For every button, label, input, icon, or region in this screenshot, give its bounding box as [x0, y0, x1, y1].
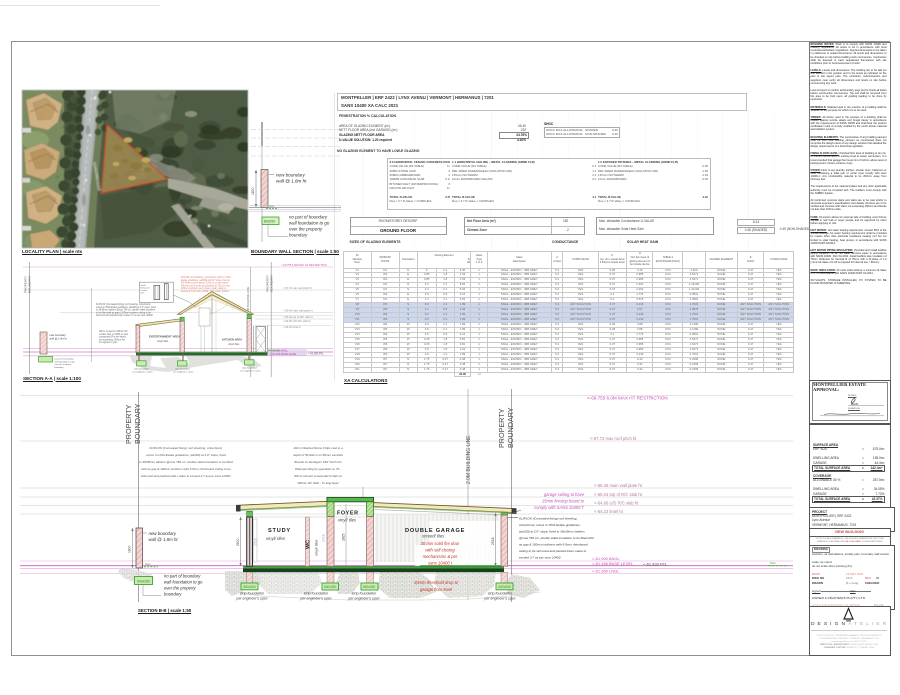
- svg-text:new boundary: new boundary: [276, 173, 306, 178]
- svg-text:strip foundation: strip foundation: [352, 592, 377, 596]
- svg-text:ENTERTAINMENT AREA: ENTERTAINMENT AREA: [149, 335, 180, 339]
- svg-text:exceed 3.7 as per sans 10400: exceed 3.7 as per sans 10400: [519, 556, 561, 560]
- svg-text:skimmed and painted total r-va: skimmed and painted total r-value 3.7 as…: [96, 314, 153, 317]
- svg-text:2518: 2518: [491, 537, 495, 545]
- svg-text:<-61.166 BASE LEVEL: <-61.166 BASE LEVEL: [592, 561, 634, 566]
- svg-text:NGL: NGL: [269, 204, 275, 208]
- svg-text:per engineer's spec: per engineer's spec: [347, 597, 379, 601]
- svg-text:<-65.04 top of R/C slab ht: <-65.04 top of R/C slab ht: [594, 492, 643, 497]
- svg-text:screed/ tiles: screed/ tiles: [422, 534, 445, 539]
- svg-text:per engineer's spec: per engineer's spec: [483, 597, 515, 601]
- svg-text:ceiling to be skimmed and pain: ceiling to be skimmed and painted total …: [519, 549, 586, 553]
- svg-text:<-61.166 BASE LEVEL: <-61.166 BASE LEVEL: [270, 352, 297, 356]
- svg-text:<-67.72 max roof pitch ht: <-67.72 max roof pitch ht: [283, 286, 312, 290]
- svg-text:10mm threshold drop to: 10mm threshold drop to: [414, 580, 459, 585]
- svg-text:mechanisms & per: mechanisms & per: [423, 554, 458, 559]
- svg-text:BOUNDARY: BOUNDARY: [133, 403, 142, 444]
- svg-text:per engineer’s specs: per engineer’s specs: [173, 371, 195, 373]
- svg-text:colour to HOA Estate guideline: colour to HOA Estate guidelines, (az200)…: [96, 306, 157, 309]
- svg-text:BW250: BW250: [264, 220, 275, 224]
- svg-text:PROPERTY: PROPERTY: [124, 404, 133, 444]
- svg-text:<-64.68 U/S R/C slab ht: <-64.68 U/S R/C slab ht: [594, 501, 639, 506]
- svg-text:strip foundation: strip foundation: [488, 592, 513, 596]
- svg-text:colourbond, colour to HOA Esta: colourbond, colour to HOA Estate guideli…: [519, 523, 581, 527]
- svg-text:600x250: 600x250: [363, 585, 375, 589]
- svg-text:wall foundation to go: wall foundation to go: [289, 221, 330, 226]
- svg-text:per engineer’s specs: per engineer’s specs: [132, 371, 154, 373]
- svg-text:colour to HOA Estate guideline: colour to HOA Estate guidelines, (az200)…: [146, 453, 226, 457]
- svg-text:boundary: boundary: [289, 233, 308, 238]
- svg-text:with air gap & 100mm isotherm: with air gap & 100mm isotherm with 9.5mm…: [141, 467, 231, 471]
- svg-text:(az200) at 2.0° slope, fixed: (az200) at 2.0° slope, fixed to 38x38mm …: [519, 530, 585, 534]
- svg-text:in gutter: in gutter: [140, 289, 147, 292]
- svg-text:KLIPLOK (Concealed fixing) roo: KLIPLOK (Concealed fixing) roof sheeting…: [149, 446, 222, 450]
- svg-text:per engineer’s specs: per engineer’s specs: [240, 370, 262, 372]
- svg-text:30mm screed on 180mm RC: 30mm screed on 180mm RC: [99, 330, 128, 333]
- svg-text:600x250: 600x250: [324, 585, 336, 589]
- svg-text:over the property: over the property: [164, 586, 197, 591]
- svg-text:600x250: 600x250: [244, 585, 256, 589]
- svg-text:to 38/38mm battens @max 760 c/: to 38/38mm battens @max 760 c/c. double …: [96, 309, 156, 312]
- svg-text:depth of 50-60mm on 60mm Lambd: depth of 50-60mm on 60mm Lambda: [293, 453, 343, 457]
- svg-text:wall: wall: [140, 293, 144, 295]
- svg-text:1800: 1800: [128, 545, 132, 553]
- svg-text:135mm isotherm over trusses. t: 135mm isotherm over trusses. total r-val…: [181, 287, 227, 290]
- svg-text:strip foundation: strip foundation: [240, 592, 265, 596]
- svg-text:<-64.23 lintel ht: <-64.23 lintel ht: [283, 325, 301, 329]
- svg-text:WC: WC: [306, 540, 312, 549]
- svg-text:Boards on Derbigum SP4 Torch-O: Boards on Derbigum SP4 Torch-On: [294, 460, 342, 464]
- svg-text:SA pine roof trusses by specia: SA pine roof trusses by specialist @ 760…: [181, 284, 231, 287]
- svg-text:BOUNDARY: BOUNDARY: [28, 276, 32, 293]
- svg-text:over the property: over the property: [289, 227, 323, 232]
- svg-text:2.0M BUILDING LINE: 2.0M BUILDING LINE: [466, 435, 472, 484]
- svg-text:7.0M BUILDING LINE: 7.0M BUILDING LINE: [246, 287, 250, 314]
- svg-text:180mm RC Slab - To Eng Spec: 180mm RC Slab - To Eng Spec: [297, 481, 339, 485]
- svg-text:with self closing: with self closing: [425, 548, 455, 553]
- svg-text:per engineer's spec: per engineer's spec: [299, 597, 331, 601]
- svg-text:boundary: boundary: [164, 592, 182, 597]
- svg-text:1800: 1800: [251, 187, 255, 195]
- svg-text:<-67.72 max roof pitch ht: <-67.72 max roof pitch ht: [590, 436, 637, 441]
- svg-text:FOYER: FOYER: [337, 511, 359, 517]
- svg-text:strip foundation: strip foundation: [175, 368, 191, 371]
- svg-text:@max 760 c/c, double sided in: @max 760 c/c, double sided insulation to…: [519, 536, 594, 540]
- svg-text:vinyl/ tiles: vinyl/ tiles: [266, 536, 286, 541]
- svg-text:BOUNDARY: BOUNDARY: [270, 275, 274, 292]
- svg-text:<-65.46 main wall plate ht: <-65.46 main wall plate ht: [283, 309, 313, 313]
- svg-text:new boundary: new boundary: [149, 531, 177, 536]
- svg-text:no part of boundary: no part of boundary: [55, 358, 75, 361]
- svg-text:<-65.46 main wall plate ht: <-65.46 main wall plate ht: [594, 483, 643, 488]
- svg-text:surface bed, on DPM on well: surface bed, on DPM on well: [99, 333, 128, 336]
- svg-text:<-65.04 top of R/C slab ht: <-65.04 top of R/C slab ht: [283, 315, 313, 319]
- svg-text:<-61.833 FFL: <-61.833 FFL: [643, 561, 668, 566]
- svg-text:comply with SANS 10400 T: comply with SANS 10400 T: [534, 505, 584, 510]
- svg-text:boundary: boundary: [55, 367, 65, 369]
- svg-text:strip foundation: strip foundation: [242, 367, 258, 370]
- svg-text:not exceeding 150mm thk: not exceeding 150mm thk: [99, 338, 126, 341]
- svg-text:600x250: 600x250: [137, 579, 150, 583]
- svg-text:19mm Washed Stone Chips cast t: 19mm Washed Stone Chips cast to a: [293, 446, 343, 450]
- svg-text:15mm firestop board to: 15mm firestop board to: [542, 499, 585, 504]
- svg-text:to engineer's spec: to engineer's spec: [99, 341, 118, 344]
- svg-text:600x250: 600x250: [499, 585, 511, 589]
- svg-text:air gap & 100mm isotherm with: air gap & 100mm isotherm with 9.5mm rhin…: [519, 543, 588, 547]
- svg-text:50x76mm purlins @max 1200 c/c: 50x76mm purlins @max 1200 c/c on pre-man…: [181, 282, 229, 285]
- svg-text:<-69.755 6.0M MAX HT RESTRICTI: <-69.755 6.0M MAX HT RESTRICTION: [281, 263, 327, 267]
- svg-text:wall @ 1.8m ht: wall @ 1.8m ht: [50, 336, 67, 340]
- svg-text:vinyl/ tiles: vinyl/ tiles: [315, 539, 319, 556]
- svg-text:2600: 2600: [236, 538, 240, 546]
- svg-text:<-64.68 U/S R/C slab ht: <-64.68 U/S R/C slab ht: [283, 319, 311, 323]
- svg-text:vinyl/ tiles: vinyl/ tiles: [228, 342, 240, 346]
- svg-text:KLIPLOK (Concealed fixing) roo: KLIPLOK (Concealed fixing) roof sheeting…: [96, 303, 151, 306]
- svg-text:30mm cement screed laid to fal: 30mm cement screed laid to falls on: [294, 474, 342, 478]
- svg-text:strip foundation: strip foundation: [304, 592, 329, 596]
- svg-text:to be fitted with air gap & 10: to be fitted with air gap & 100mm isothe…: [96, 311, 152, 314]
- svg-text:NGL: NGL: [145, 562, 151, 566]
- svg-text:compacted fill in e/w layers: compacted fill in e/w layers: [99, 336, 127, 339]
- svg-text:B Profile roof sheeting, colou: B Profile roof sheeting, colourbond, col…: [181, 276, 231, 279]
- svg-text:no part of boundary: no part of boundary: [289, 215, 328, 220]
- svg-text:STUDY: STUDY: [268, 528, 291, 534]
- svg-text:sans 10400 t: sans 10400 t: [428, 561, 453, 566]
- svg-text:exceed 3.7 per sans 10400. 'Tr: exceed 3.7 per sans 10400. 'Trim' colour…: [181, 290, 230, 293]
- svg-text:30 min solid fire door: 30 min solid fire door: [421, 541, 460, 546]
- svg-text:vinyl/ tiles: vinyl/ tiles: [157, 339, 169, 343]
- svg-text:<-61.350 LNGL: <-61.350 LNGL: [592, 569, 620, 574]
- svg-text:2318: 2318: [322, 534, 326, 542]
- svg-text:per engineer's spec: per engineer's spec: [235, 597, 267, 601]
- svg-text:over the property: over the property: [55, 363, 72, 366]
- svg-text:wall foundation to go: wall foundation to go: [164, 580, 203, 585]
- svg-text:no part of boundary: no part of boundary: [164, 574, 201, 579]
- svg-text:Estate guidelines, (az200) at: Estate guidelines, (az200) at 20.0° slop…: [181, 279, 231, 282]
- svg-text:<-64.23 lintel ht: <-64.23 lintel ht: [594, 509, 624, 514]
- svg-text:<-69.755 6.0M MAX HT RESTRICTI: <-69.755 6.0M MAX HT RESTRICTION: [587, 396, 668, 401]
- svg-text:wall @ 1.8m ht: wall @ 1.8m ht: [149, 537, 179, 542]
- svg-text:wall @ 1.8m ht: wall @ 1.8m ht: [276, 179, 307, 184]
- svg-text:BOUNDARY: BOUNDARY: [506, 407, 515, 448]
- svg-text:strip foundation: strip foundation: [134, 368, 150, 371]
- svg-text:NGL: NGL: [770, 561, 777, 565]
- svg-text:KLIPLOK (Concealed fixing) roo: KLIPLOK (Concealed fixing) roof sheeting…: [519, 517, 577, 521]
- svg-text:skimmed and painted total r-va: skimmed and painted total r-value to exc…: [141, 474, 231, 478]
- svg-text:garage floor level: garage floor level: [420, 587, 453, 592]
- svg-text:wall foundation to go: wall foundation to go: [55, 360, 76, 363]
- svg-text:KITCHEN AREA: KITCHEN AREA: [222, 338, 242, 342]
- svg-text:Waterproofing by specialist on: Waterproofing by specialist on 70 -: [295, 467, 341, 471]
- svg-text:<-61.833 FFL: <-61.833 FFL: [308, 352, 324, 356]
- svg-text:PROPERTY: PROPERTY: [497, 408, 506, 448]
- svg-text:garage ceiling to have: garage ceiling to have: [544, 492, 585, 497]
- svg-text:2518: 2518: [254, 538, 258, 546]
- svg-text:2825: 2825: [341, 533, 345, 541]
- svg-text:to 38/38mm battens @max 760 c/: to 38/38mm battens @max 760 c/c. double …: [139, 460, 233, 464]
- svg-text:vinyl/ tiles: vinyl/ tiles: [338, 518, 357, 523]
- svg-text:new boundary: new boundary: [50, 333, 67, 337]
